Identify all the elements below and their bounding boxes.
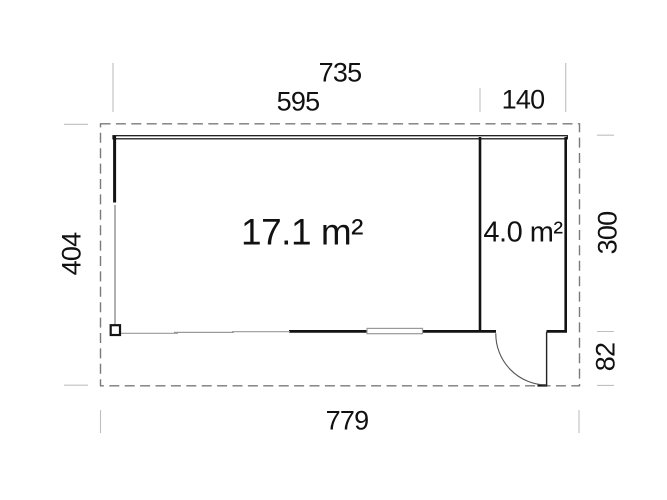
floor-plan-canvas: 735 595 140 779 404 300 82 17.1 m² 4.0 m… [0, 0, 667, 500]
dim-right-room-depth: 300 [595, 212, 622, 255]
side-room-area-label: 4.0 m² [483, 219, 562, 248]
dim-top-side: 140 [502, 87, 545, 114]
dim-bottom-total: 779 [326, 408, 369, 435]
corner-post [111, 325, 120, 335]
main-room-area-label: 17.1 m² [241, 214, 363, 251]
dim-left-depth: 404 [59, 233, 86, 276]
door-swing-arc [496, 333, 547, 385]
open-front-segments [120, 332, 290, 334]
window [367, 328, 423, 333]
dim-right-overhang: 82 [593, 343, 620, 371]
dim-top-main: 595 [277, 89, 320, 116]
roof-outline [101, 124, 580, 386]
wall-top [113, 136, 567, 139]
dim-top-total: 735 [319, 60, 362, 87]
